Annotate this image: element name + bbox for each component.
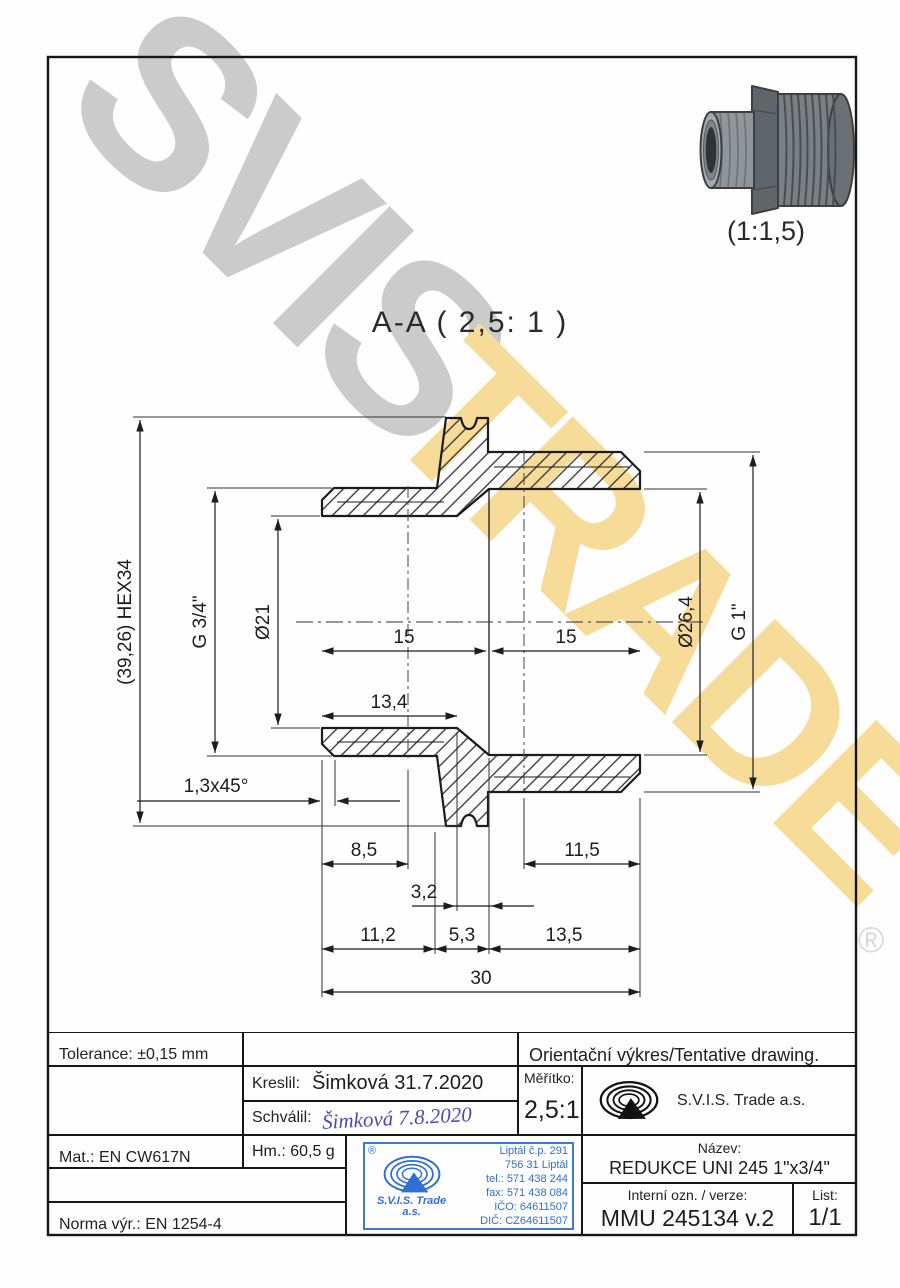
- stamp-logo-icon: [381, 1154, 443, 1196]
- kreslil-label: Kreslil:: [252, 1075, 300, 1093]
- meritko-value: 2,5:1: [524, 1096, 576, 1125]
- dim-label-135: 13,5: [546, 925, 583, 946]
- schvalil-signature: Šimková 7.8.2020: [321, 1102, 472, 1135]
- interni-label: Interní ozn. / verze:: [628, 1187, 748, 1203]
- watermark-registered-icon: ®: [858, 919, 885, 960]
- list-cell: List: 1/1: [793, 1183, 857, 1235]
- stamp-line: fax: 571 438 084: [458, 1186, 568, 1200]
- bore-hole: [706, 127, 717, 173]
- stamp-line: DIČ: CZ64611507: [458, 1214, 568, 1228]
- empty-cell-left: [48, 1066, 243, 1135]
- dim-label-15-left: 15: [393, 627, 414, 648]
- list-value: 1/1: [808, 1204, 841, 1232]
- dim-label-hex: (39,26) HEX34: [115, 559, 136, 685]
- weight-cell: Hm.: 60,5 g: [243, 1135, 346, 1168]
- orientacni-cell: Orientační výkres/Tentative drawing.: [518, 1032, 857, 1066]
- weight-text: Hm.: 60,5 g: [244, 1136, 345, 1167]
- stamp-line: IČO: 64611507: [458, 1200, 568, 1214]
- meritko-cell: Měřítko: 2,5:1: [518, 1066, 582, 1135]
- stamp-brand-suffix: a.s.: [402, 1207, 420, 1218]
- hex-collar: [752, 86, 778, 214]
- material-cell: Mat.: EN CW617N: [48, 1135, 243, 1168]
- empty-cell-top: [243, 1032, 518, 1066]
- company-cell: S.V.I.S. Trade a.s.: [582, 1066, 857, 1135]
- nazev-label: Název:: [698, 1140, 742, 1156]
- dim-label-112: 11,2: [360, 925, 396, 946]
- section-view-title: A-A ( 2,5: 1 ): [372, 306, 568, 339]
- dim-label-134: 13,4: [371, 692, 408, 713]
- stamp-line: tel.: 571 438 244: [458, 1172, 568, 1186]
- empty-cell-mid: [48, 1168, 346, 1202]
- kreslil-value: Šimková 31.7.2020: [312, 1072, 483, 1095]
- dim-label-32: 3,2: [411, 882, 437, 903]
- interni-cell: Interní ozn. / verze: MMU 245134 v.2: [582, 1183, 793, 1235]
- list-label: List:: [812, 1187, 838, 1203]
- company-stamp: ® S.V.I.S. Trade a.s. Liptál č.p. 291 75…: [363, 1142, 574, 1230]
- nazev-value: REDUKCE UNI 245 1"x3/4": [609, 1158, 830, 1179]
- dim-label-g1: G 1": [729, 603, 750, 640]
- norma-cell: Norma výr.: EN 1254-4: [48, 1202, 346, 1235]
- tolerance-cell: Tolerance: ±0,15 mm: [48, 1032, 243, 1066]
- schvalil-label: Schválil:: [252, 1109, 312, 1127]
- stamp-registered-icon: ®: [368, 1145, 376, 1157]
- svis-logo-icon: [597, 1079, 661, 1123]
- dim-label-chamfer: 1,3x45°: [184, 776, 249, 797]
- dim-label-85: 8,5: [351, 840, 377, 861]
- company-name: S.V.I.S. Trade a.s.: [677, 1092, 805, 1110]
- part-3d-illustration: [701, 86, 855, 214]
- watermark-word-trade: TRADE: [343, 289, 900, 939]
- technical-drawing-sheet: SVIS TRADE ® (1:1,5) A-A ( 2,5: 1 ): [0, 0, 900, 1288]
- stamp-line: 756 31 Liptál: [458, 1158, 568, 1172]
- stamp-address: Liptál č.p. 291 756 31 Liptál tel.: 571 …: [458, 1144, 572, 1228]
- dim-label-53: 5,3: [449, 925, 475, 946]
- dim-label-30: 30: [470, 968, 491, 989]
- nazev-cell: Název: REDUKCE UNI 245 1"x3/4": [582, 1135, 857, 1183]
- stamp-line: Liptál č.p. 291: [458, 1144, 568, 1158]
- dim-label-g34: G 3/4": [190, 595, 211, 648]
- dim-label-d21: Ø21: [253, 604, 274, 640]
- dim-label-115: 11,5: [564, 840, 600, 861]
- dim-label-15-right: 15: [555, 627, 576, 648]
- dim-label-d264: Ø26,4: [676, 596, 697, 648]
- norma-text: Norma výr.: EN 1254-4: [49, 1203, 345, 1246]
- large-cylinder-end: [828, 94, 854, 206]
- kreslil-cell: Kreslil: Šimková 31.7.2020: [243, 1066, 518, 1101]
- view-scale-label: (1:1,5): [727, 216, 805, 246]
- interni-value: MMU 245134 v.2: [601, 1205, 774, 1232]
- schvalil-cell: Schválil: Šimková 7.8.2020: [243, 1101, 518, 1135]
- stamp-cell: ® S.V.I.S. Trade a.s. Liptál č.p. 291 75…: [346, 1135, 582, 1235]
- meritko-label: Měřítko:: [524, 1070, 576, 1086]
- title-block: Tolerance: ±0,15 mm Orientační výkres/Te…: [48, 1032, 857, 1235]
